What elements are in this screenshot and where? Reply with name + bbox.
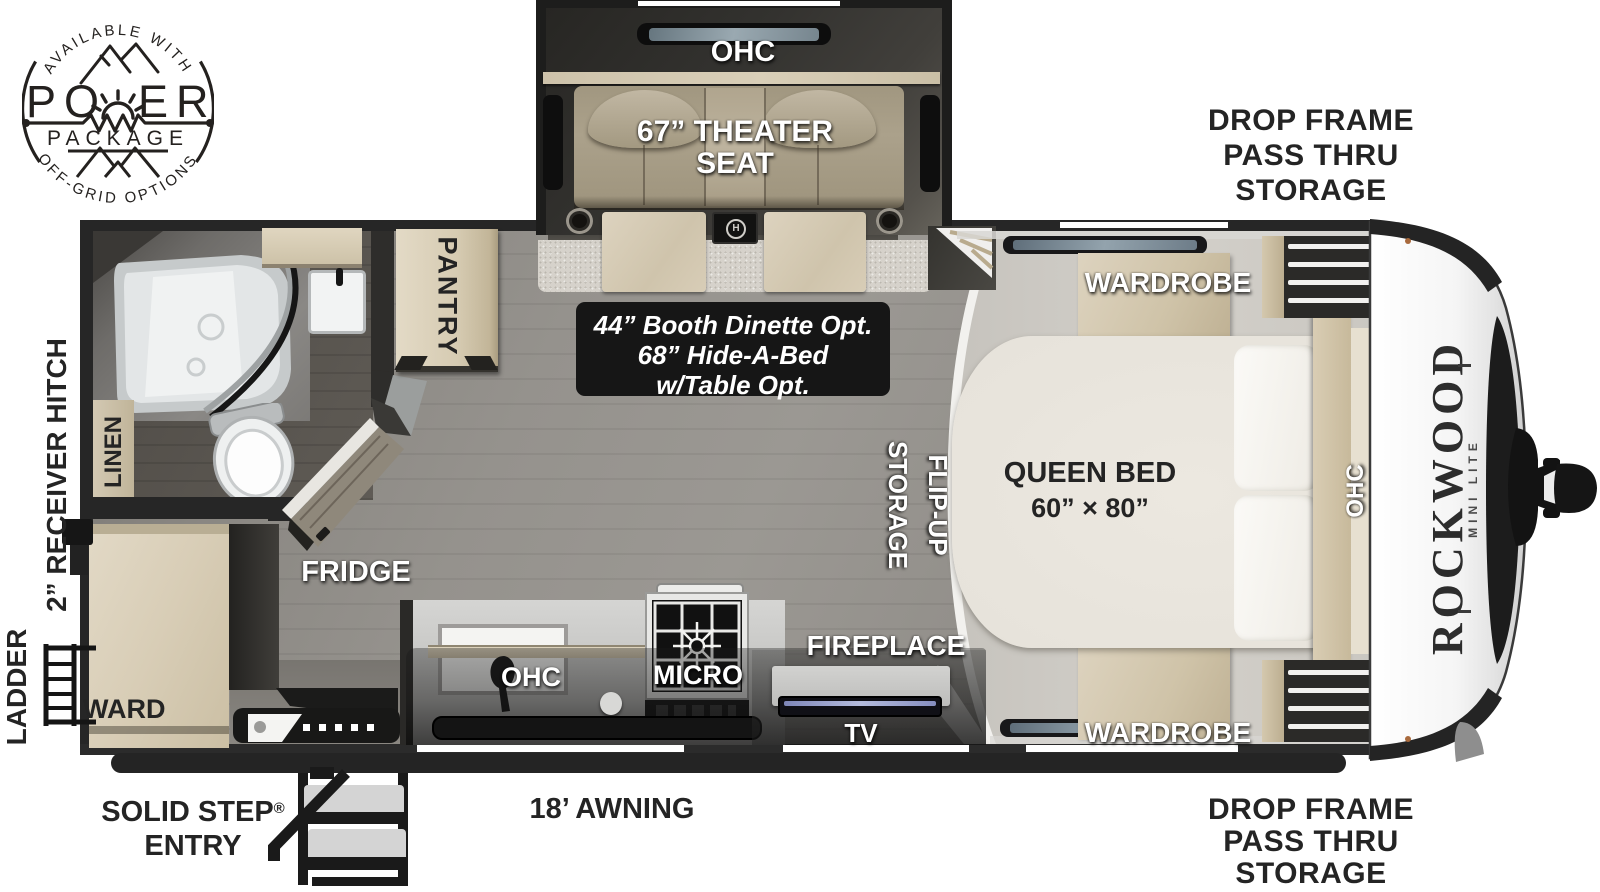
svg-text:OFF-GRID OPTIONS: OFF-GRID OPTIONS: [34, 150, 202, 206]
svg-text:AVAILABLE WITH: AVAILABLE WITH: [40, 22, 196, 77]
svg-text:ER: ER: [138, 76, 214, 127]
svg-text:PACKAGE: PACKAGE: [47, 127, 189, 150]
